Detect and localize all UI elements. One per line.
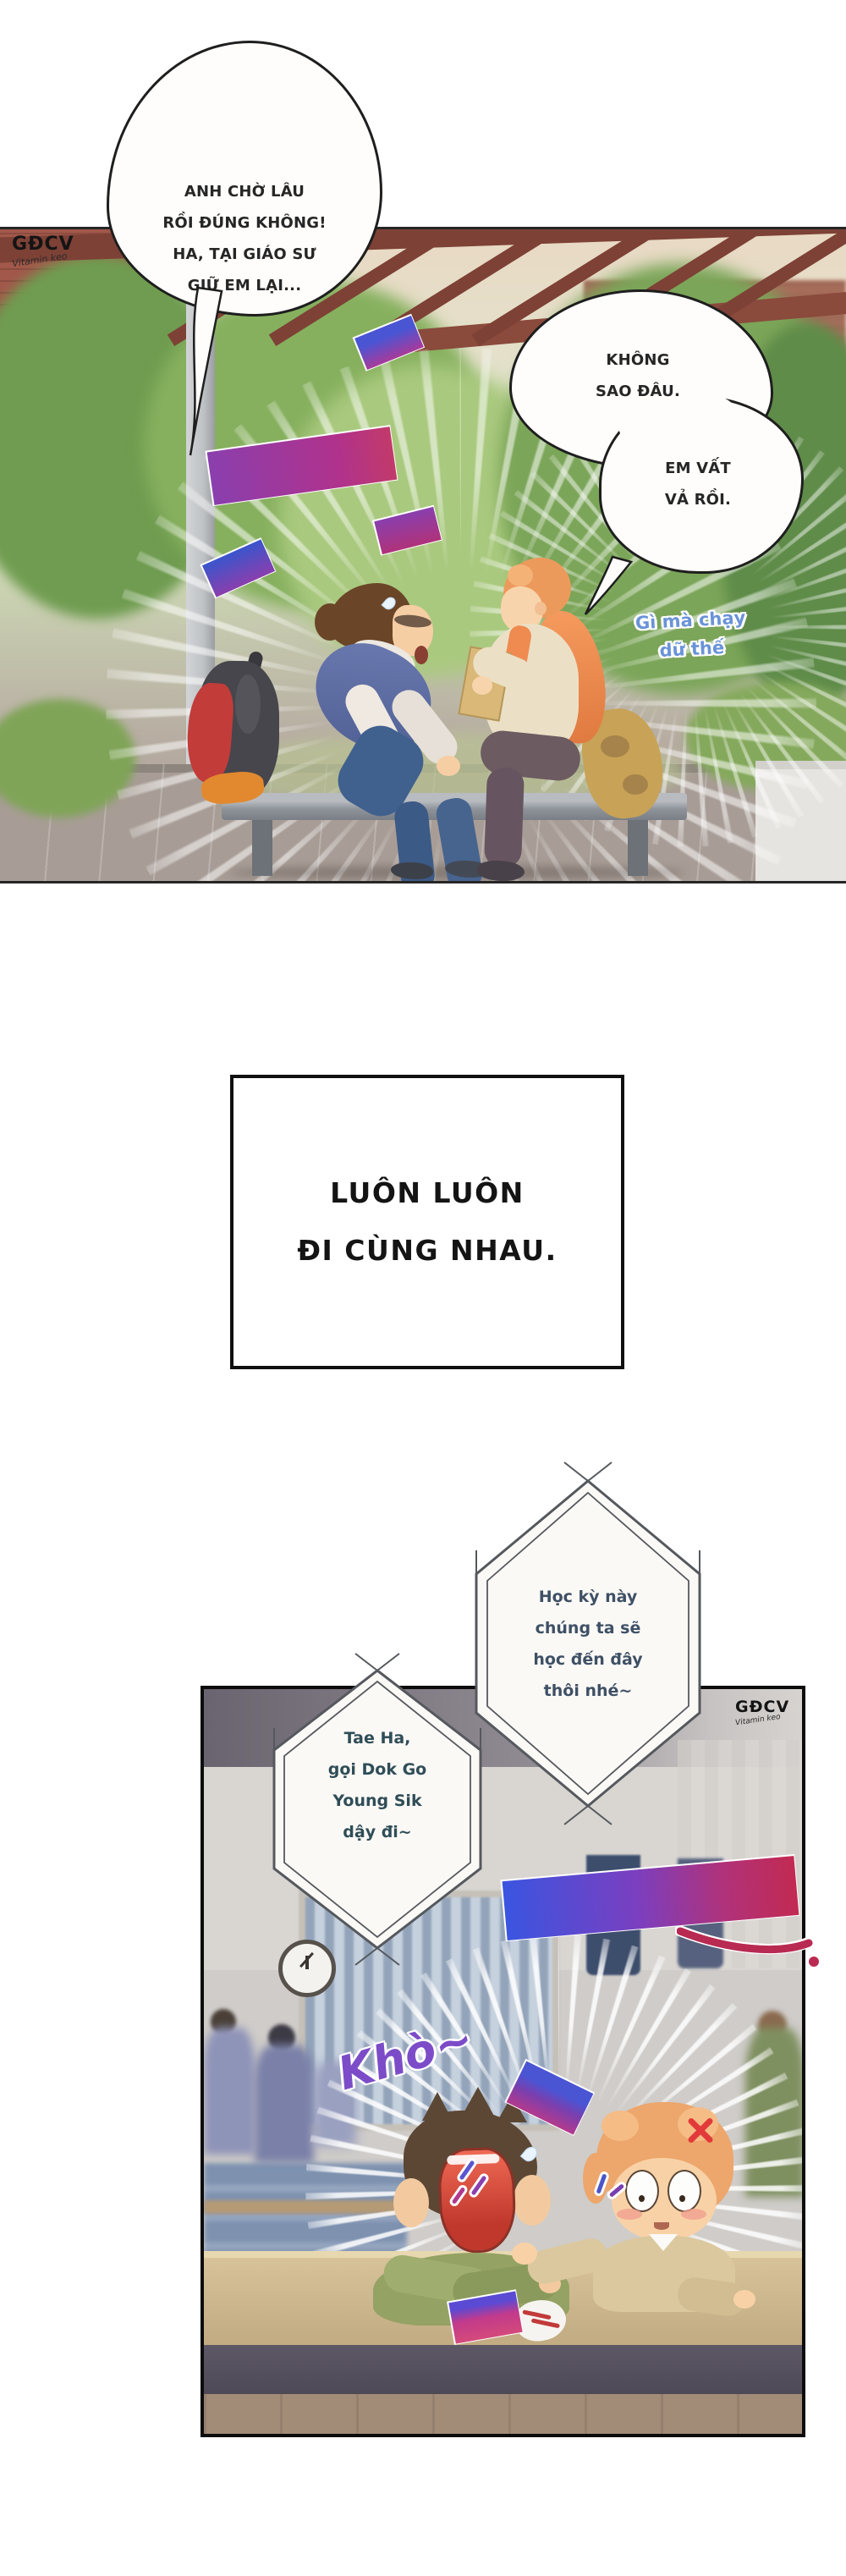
- hex-line: Học kỳ này: [539, 1582, 638, 1613]
- comic-page: Hộc Hộc Hộc Aigoo~ Gì mà chạy dữ thế GĐC…: [0, 0, 846, 2576]
- annoyed-chibi: [576, 2102, 754, 2348]
- narration-line: LUÔN LUÔN: [330, 1164, 525, 1222]
- backpack-highlight: [235, 674, 261, 734]
- speech-bubble-tail: [584, 555, 643, 621]
- shin: [484, 767, 525, 867]
- blush: [681, 2209, 706, 2220]
- aside-text: Gì mà chạy dữ thế: [626, 603, 755, 667]
- bubble-line: SAO ĐÂU.: [596, 377, 680, 408]
- bubble-line: EM VẤT: [665, 454, 731, 485]
- hair-highlight: [602, 2111, 639, 2141]
- eye: [625, 2170, 659, 2212]
- cheek: [514, 2175, 551, 2226]
- shoe: [391, 862, 433, 879]
- bench-leg: [252, 818, 272, 876]
- narration-box: LUÔN LUÔN ĐI CÙNG NHAU.: [230, 1075, 624, 1369]
- hex-line: chúng ta sẽ: [536, 1613, 641, 1644]
- watermark: GĐCV Vitamin keo: [735, 1699, 789, 1724]
- hex-line: Tae Ha,: [344, 1723, 411, 1754]
- bag-spot: [601, 735, 629, 757]
- bubble-line: KHÔNG: [606, 345, 669, 377]
- hex-bubble-left-text: Tae Ha, gọi Dok Go Young Sik dậy đi~: [286, 1726, 469, 1845]
- hand: [733, 2290, 755, 2309]
- sfx-laugh-swash: [677, 1919, 829, 1979]
- sitting-character: [457, 558, 685, 881]
- shoe: [477, 861, 525, 881]
- hand: [472, 676, 492, 695]
- student-figure: [255, 2045, 314, 2163]
- hex-line: dậy đi~: [343, 1817, 411, 1848]
- speech-bubble-right: KHÔNG SAO ĐÂU. EM VẤT VẢ RỒI.: [509, 288, 801, 571]
- bubble-line: HA, TẠI GIÁO SƯ: [173, 239, 316, 271]
- floor: [204, 2394, 802, 2434]
- ear: [535, 602, 547, 615]
- bubble-text: EM VẤT VẢ RỒI.: [618, 430, 778, 540]
- bubble-line: RỒI ĐÚNG KHÔNG!: [162, 208, 326, 239]
- open-mouth: [415, 646, 428, 664]
- speech-bubble-tail: [178, 286, 228, 460]
- blush: [617, 2209, 642, 2220]
- hex-line: học đến đây: [533, 1644, 642, 1676]
- speech-bubble-left: ANH CHỜ LÂU RỒI ĐÚNG KHÔNG! HA, TẠI GIÁO…: [107, 41, 382, 316]
- bubble-line: ANH CHỜ LÂU: [184, 177, 305, 208]
- open-mouth: [437, 2146, 517, 2254]
- bubble-line: VẢ RỒI.: [665, 485, 731, 516]
- bag-spot: [623, 774, 648, 795]
- hex-line: thôi nhé~: [544, 1676, 633, 1707]
- backpack: [188, 646, 289, 815]
- hex-line: Young Sik: [332, 1786, 421, 1817]
- mouth: [654, 2222, 669, 2230]
- narration-line: ĐI CÙNG NHAU.: [297, 1222, 557, 1280]
- eye: [667, 2170, 701, 2212]
- anger-mark-icon: [684, 2114, 717, 2146]
- pupil: [679, 2195, 685, 2202]
- hand: [512, 2243, 537, 2265]
- hex-line: gọi Dok Go: [328, 1754, 427, 1786]
- desk-front: [204, 2345, 802, 2394]
- student-figure: [204, 2028, 255, 2155]
- watermark: GĐCV Vitamin keo: [12, 235, 74, 264]
- bubble-text: KHÔNG SAO ĐÂU.: [553, 322, 722, 432]
- cheek: [393, 2178, 429, 2227]
- hex-bubble-right-text: Học kỳ này chúng ta sẽ học đến đây thôi …: [486, 1572, 689, 1716]
- pupil: [639, 2195, 645, 2202]
